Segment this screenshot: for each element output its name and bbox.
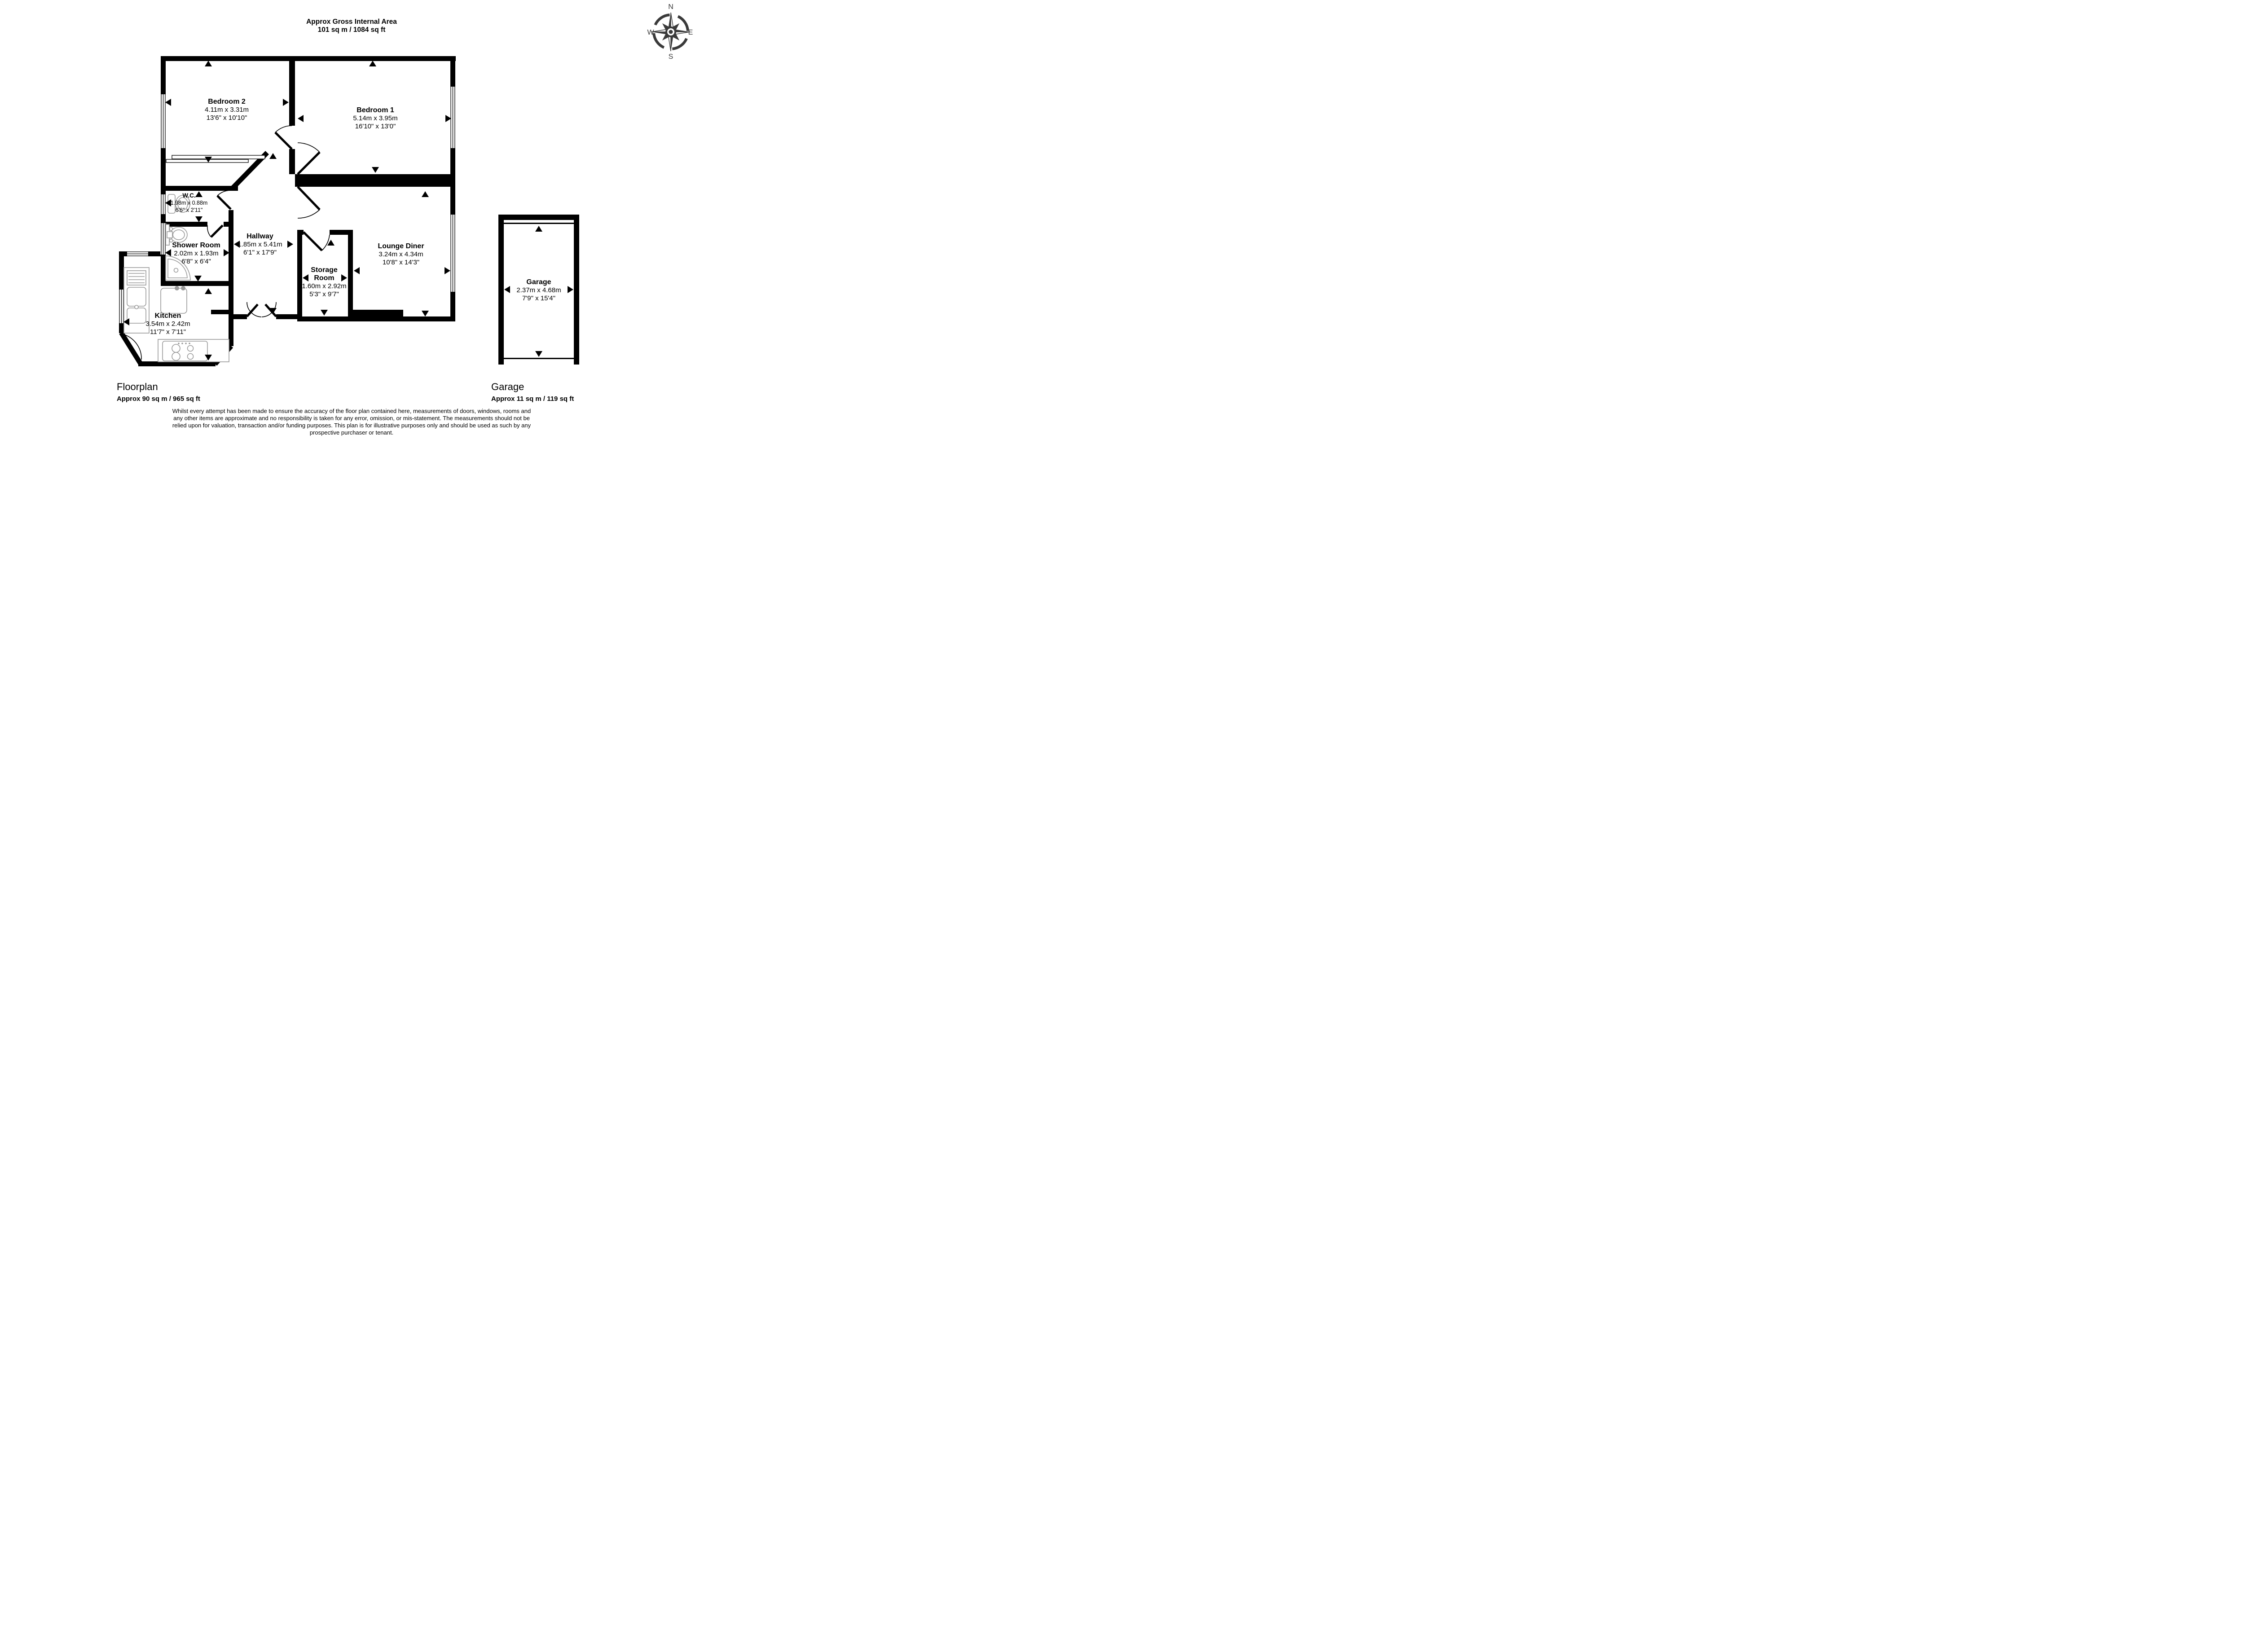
room-dim-imperial: 6'6" x 2'11" [176, 207, 203, 213]
garage-section-label: Garage [491, 381, 524, 392]
wall [161, 56, 456, 61]
measure-arrow-icon [341, 274, 347, 281]
window-lounge-right [450, 215, 456, 292]
wall-chamfer [121, 333, 141, 364]
compass-south-label: S [669, 53, 673, 61]
room-dim-imperial: 11'7" x 7'11" [150, 328, 186, 336]
room-dim-imperial: 6'1" x 17'9" [243, 249, 277, 256]
wall [224, 222, 229, 227]
room-dim-imperial: 7'9" x 15'4" [522, 294, 555, 302]
measure-arrow-icon [194, 276, 202, 281]
stove [158, 339, 229, 362]
room-dim-imperial: 10'8" x 14'3" [383, 259, 419, 266]
wall [211, 310, 229, 314]
room-label-garage: Garage 2.37m x 4.68m 7'9" x 15'4" [516, 278, 561, 302]
measure-arrow-icon [535, 226, 542, 232]
wall [276, 314, 297, 319]
wall [161, 281, 233, 286]
wall [297, 316, 455, 321]
wall [297, 230, 302, 321]
measure-arrow-icon [422, 191, 429, 197]
room-name: Bedroom 2 [208, 98, 246, 105]
disclaimer-line-3: relied upon for valuation, transaction a… [172, 422, 531, 429]
wall [352, 310, 403, 316]
footer: Floorplan Approx 90 sq m / 965 sq ft Gar… [117, 381, 574, 403]
measure-arrow-icon [445, 267, 450, 274]
measure-arrow-icon [195, 191, 202, 197]
wall [161, 186, 238, 191]
door-shower [207, 225, 223, 237]
wall [161, 61, 166, 94]
measure-arrow-icon [269, 153, 277, 159]
floorplan-page: Approx Gross Internal Area 101 sq m / 10… [0, 0, 694, 440]
door-bedroom2 [275, 126, 292, 149]
room-dim-metric: 1.60m x 2.92m [302, 282, 346, 290]
door-lounge [298, 187, 320, 218]
compass-north-label: N [668, 3, 673, 11]
title-line-2: 101 sq m / 1084 sq ft [318, 26, 386, 34]
room-dim-imperial: 5'3" x 9'7" [309, 290, 339, 298]
measure-arrow-icon [287, 241, 293, 248]
room-dim-metric: 3.54m x 2.42m [145, 320, 190, 328]
compass-hub-dot [669, 30, 673, 34]
room-dim-metric: 2.02m x 1.93m [174, 250, 218, 257]
measure-arrow-icon [422, 311, 429, 316]
wall [297, 230, 304, 235]
disclaimer-line-4: prospective purchaser or tenant. [310, 429, 393, 436]
room-dim-imperial: 6'8" x 6'4" [181, 258, 211, 265]
room-dim-metric: 2.37m x 4.68m [516, 286, 561, 294]
measure-arrow-icon [504, 286, 510, 293]
measure-arrow-icon [303, 274, 308, 281]
wall [289, 149, 295, 174]
gross-internal-area-title: Approx Gross Internal Area 101 sq m / 10… [306, 18, 397, 34]
wall [229, 210, 233, 286]
room-dim-metric: 1.85m x 5.41m [238, 241, 282, 248]
room-label-storage-room: Storage Room 1.60m x 2.92m 5'3" x 9'7" [302, 266, 346, 298]
window-wc-left [160, 194, 166, 214]
wall [348, 230, 353, 316]
title-line-1: Approx Gross Internal Area [306, 18, 397, 26]
room-name: Hallway [247, 233, 273, 240]
wall [574, 215, 579, 365]
kitchen-sink [127, 287, 146, 323]
disclaimer-line-1: Whilst every attempt has been made to en… [172, 408, 531, 414]
room-dim-metric: 3.24m x 4.34m [379, 250, 423, 258]
measure-arrow-icon [535, 351, 542, 357]
window-shower-left [160, 223, 166, 255]
measure-arrow-icon [205, 61, 212, 66]
water-heater [161, 286, 187, 313]
room-name: Lounge Diner [378, 242, 424, 250]
window-kitchen-top [127, 251, 148, 257]
room-label-wc: W.C. 1.98m x 0.88m 6'6" x 2'11" [171, 192, 208, 213]
door-bedroom1 [298, 143, 320, 174]
room-dim-imperial: 16'10" x 13'0" [355, 123, 396, 130]
measure-arrow-icon [205, 288, 212, 294]
window-kitchen-left [119, 290, 124, 323]
measure-arrow-icon [283, 99, 289, 106]
room-label-bedroom1: Bedroom 1 5.14m x 3.95m 16'10" x 13'0" [353, 106, 397, 130]
wall [229, 314, 247, 319]
compass-rose-icon: N E S W [647, 3, 693, 61]
wall [119, 256, 124, 290]
room-name: Storage [311, 266, 338, 274]
room-name: Bedroom 1 [357, 106, 394, 114]
wall [148, 251, 161, 256]
room-name: Shower Room [172, 242, 220, 249]
room-dim-metric: 4.11m x 3.31m [205, 106, 249, 114]
room-label-hallway: Hallway 1.85m x 5.41m 6'1" x 17'9" [238, 233, 282, 256]
wall [498, 215, 579, 220]
wall [229, 286, 233, 314]
internal-window-ledge [166, 155, 265, 163]
room-dim-metric: 1.98m x 0.88m [171, 200, 208, 206]
measure-arrow-icon [568, 286, 573, 293]
measure-arrow-icon [321, 310, 328, 316]
floorplan-canvas: Approx Gross Internal Area 101 sq m / 10… [0, 0, 694, 440]
room-label-lounge-diner: Lounge Diner 3.24m x 4.34m 10'8" x 14'3" [378, 242, 424, 266]
room-name: Room [314, 274, 334, 282]
measure-arrow-icon [298, 115, 304, 122]
garage-door-line [504, 358, 574, 359]
garage-area-label: Approx 11 sq m / 119 sq ft [491, 395, 574, 403]
door-storage [304, 232, 330, 250]
window-bedroom1-right [450, 87, 456, 148]
room-name: W.C. [182, 192, 195, 199]
room-label-kitchen: Kitchen 3.54m x 2.42m 11'7" x 7'11" [145, 312, 190, 336]
room-dim-metric: 5.14m x 3.95m [353, 114, 397, 122]
disclaimer-line-2: any other items are approximate and no r… [173, 415, 530, 422]
room-name: Garage [526, 278, 551, 286]
wall [295, 174, 455, 187]
room-label-bedroom2: Bedroom 2 4.11m x 3.31m 13'6" x 10'10" [205, 98, 249, 122]
compass-east-label: E [688, 29, 693, 36]
room-dim-imperial: 13'6" x 10'10" [207, 114, 247, 122]
wall [498, 215, 504, 365]
wall [119, 251, 127, 256]
garage-door-line [504, 223, 574, 224]
measure-arrow-icon [372, 167, 379, 173]
compass-west-label: W [647, 29, 654, 36]
floorplan-area-label: Approx 90 sq m / 965 sq ft [117, 395, 200, 403]
disclaimer: Whilst every attempt has been made to en… [172, 408, 531, 436]
measure-arrow-icon [195, 216, 202, 222]
floorplan-section-label: Floorplan [117, 381, 158, 392]
wall [450, 61, 455, 87]
wall [450, 187, 455, 215]
fixtures [124, 194, 229, 362]
door-wc [217, 190, 231, 209]
measure-arrow-icon [369, 61, 376, 66]
measure-arrow-icon [354, 267, 360, 274]
room-name: Kitchen [155, 312, 181, 320]
wall [289, 56, 295, 126]
